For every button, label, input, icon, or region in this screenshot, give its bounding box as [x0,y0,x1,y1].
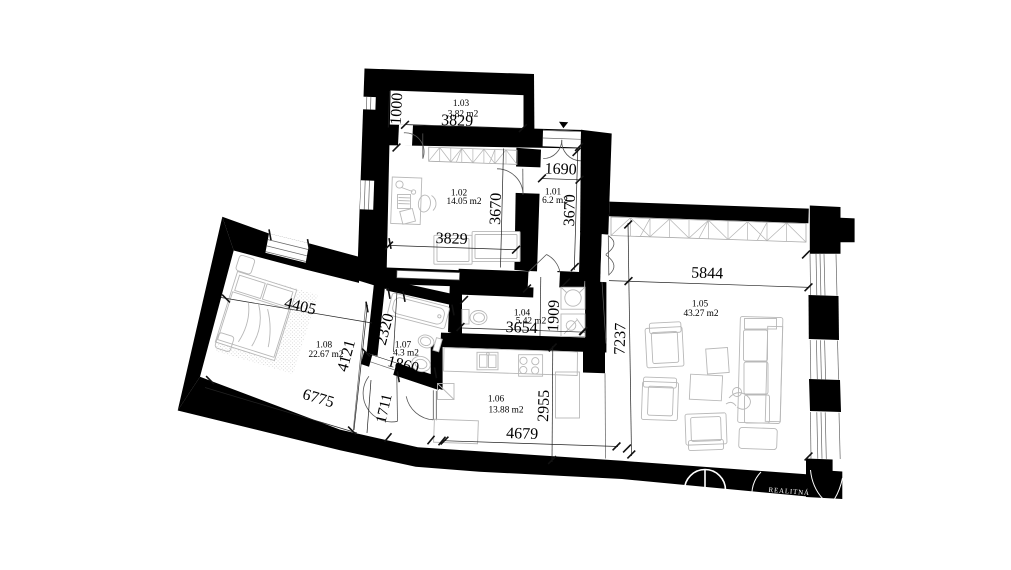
svg-text:1690: 1690 [544,160,577,178]
svg-text:5844: 5844 [691,264,724,282]
svg-text:3670: 3670 [487,193,505,226]
svg-text:7237: 7237 [611,323,629,356]
svg-text:1000: 1000 [388,92,407,125]
svg-text:1909: 1909 [545,300,563,333]
svg-text:43.27 m2: 43.27 m2 [683,309,718,319]
svg-text:1.06: 1.06 [488,395,505,405]
svg-text:3829: 3829 [435,230,468,248]
svg-text:4679: 4679 [506,425,539,443]
svg-text:3829: 3829 [441,112,474,130]
svg-text:1.05: 1.05 [692,300,709,310]
svg-text:3654: 3654 [505,319,538,337]
svg-text:2955: 2955 [535,390,553,423]
svg-text:13.88 m2: 13.88 m2 [488,406,523,416]
svg-text:3670: 3670 [561,194,579,227]
svg-text:14.05 m2: 14.05 m2 [446,197,481,207]
svg-text:1.08: 1.08 [316,341,333,351]
svg-text:1.03: 1.03 [453,99,470,109]
